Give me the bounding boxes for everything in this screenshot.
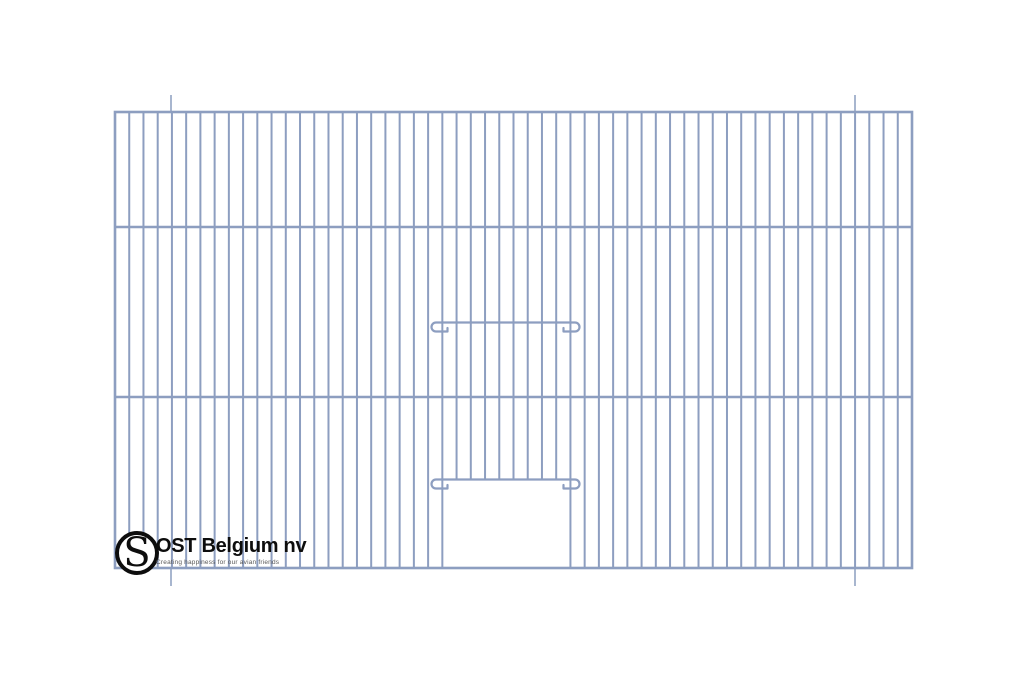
monogram-letter: S [123,535,150,571]
company-name: OST Belgium nv [156,536,306,556]
logo-text-block: OST Belgium nv Creating happiness for ou… [156,536,306,566]
ost-monogram-icon: S [115,531,159,575]
cage-front-drawing [0,0,1024,683]
company-tagline: Creating happiness for our avian friends [156,559,306,566]
ost-logo: S OST Belgium nv Creating happiness for … [115,529,335,579]
drawing-page: S OST Belgium nv Creating happiness for … [0,0,1024,683]
